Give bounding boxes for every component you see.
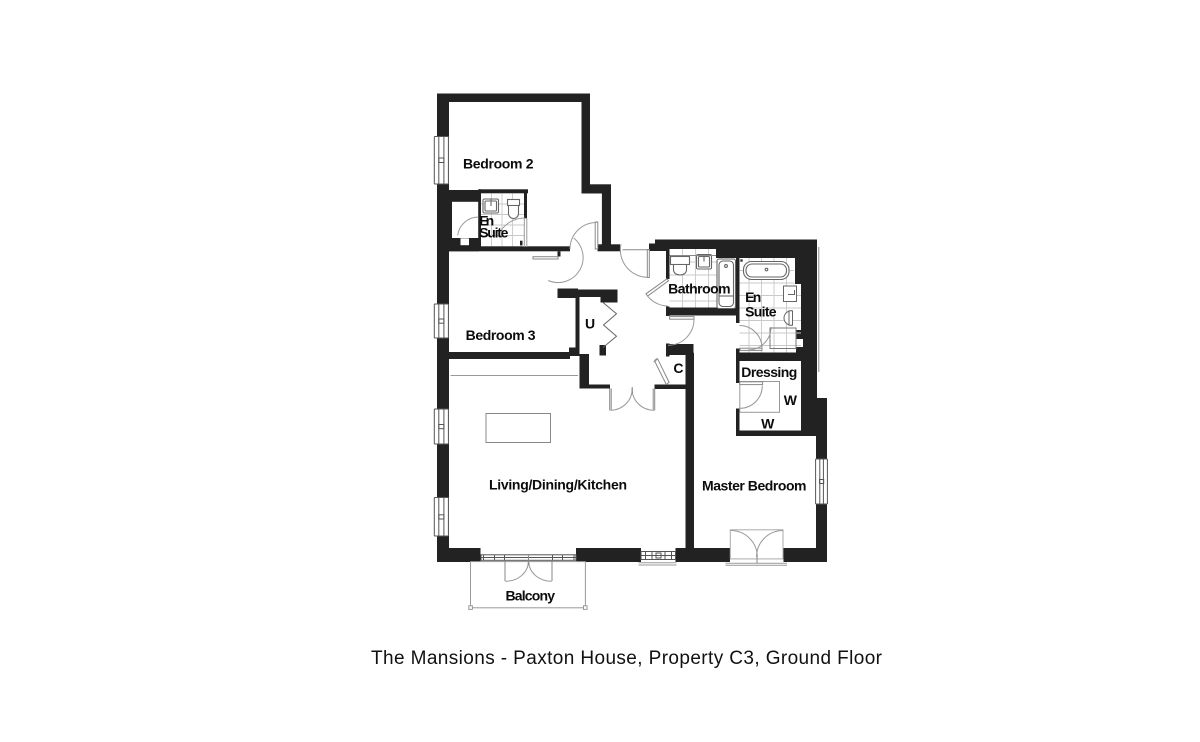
svg-text:U: U xyxy=(585,316,595,332)
svg-text:Suite: Suite xyxy=(479,224,508,240)
svg-text:Bathroom: Bathroom xyxy=(668,280,731,296)
svg-text:Bedroom 2: Bedroom 2 xyxy=(463,156,534,172)
svg-text:Suite: Suite xyxy=(745,303,777,319)
svg-text:Balcony: Balcony xyxy=(506,588,556,604)
svg-text:Master Bedroom: Master Bedroom xyxy=(702,478,807,494)
svg-text:W: W xyxy=(784,392,798,408)
svg-text:Dressing: Dressing xyxy=(741,364,797,380)
svg-text:The Mansions - Paxton House, P: The Mansions - Paxton House, Property C3… xyxy=(371,648,883,669)
svg-text:W: W xyxy=(761,416,775,432)
svg-text:Bedroom 3: Bedroom 3 xyxy=(466,327,536,343)
svg-text:Living/Dining/Kitchen: Living/Dining/Kitchen xyxy=(489,477,627,493)
svg-text:C: C xyxy=(673,360,683,376)
